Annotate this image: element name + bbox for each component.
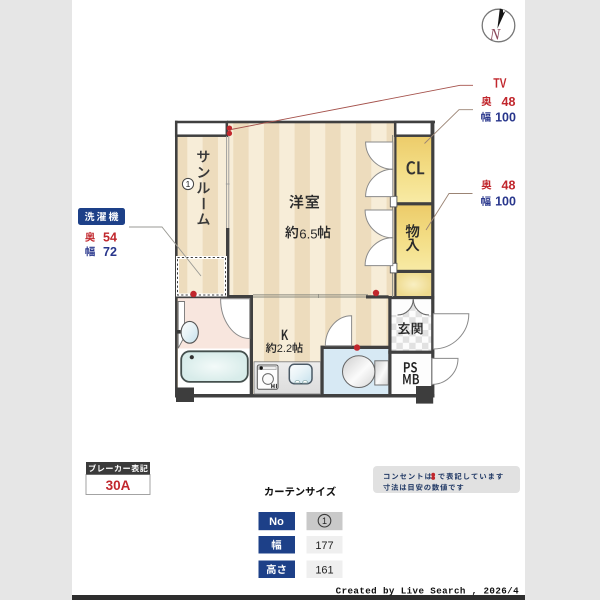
- svg-text:Created by Live Search , 2026/: Created by Live Search , 2026/4: [336, 585, 519, 596]
- svg-text:2.2: 2.2: [277, 343, 292, 355]
- svg-text:177: 177: [315, 540, 333, 552]
- svg-text:1: 1: [186, 179, 191, 189]
- svg-text:30A: 30A: [106, 478, 131, 493]
- svg-text:No: No: [269, 516, 284, 528]
- svg-text:72: 72: [103, 245, 117, 259]
- svg-text:161: 161: [315, 564, 333, 576]
- svg-text:1: 1: [322, 516, 327, 526]
- svg-text:6.5: 6.5: [299, 227, 317, 242]
- svg-text:100: 100: [495, 111, 516, 125]
- svg-text:N: N: [489, 26, 502, 43]
- svg-text:48: 48: [502, 178, 516, 192]
- svg-text:54: 54: [103, 231, 117, 245]
- svg-text:48: 48: [502, 95, 516, 109]
- svg-text:100: 100: [495, 195, 516, 209]
